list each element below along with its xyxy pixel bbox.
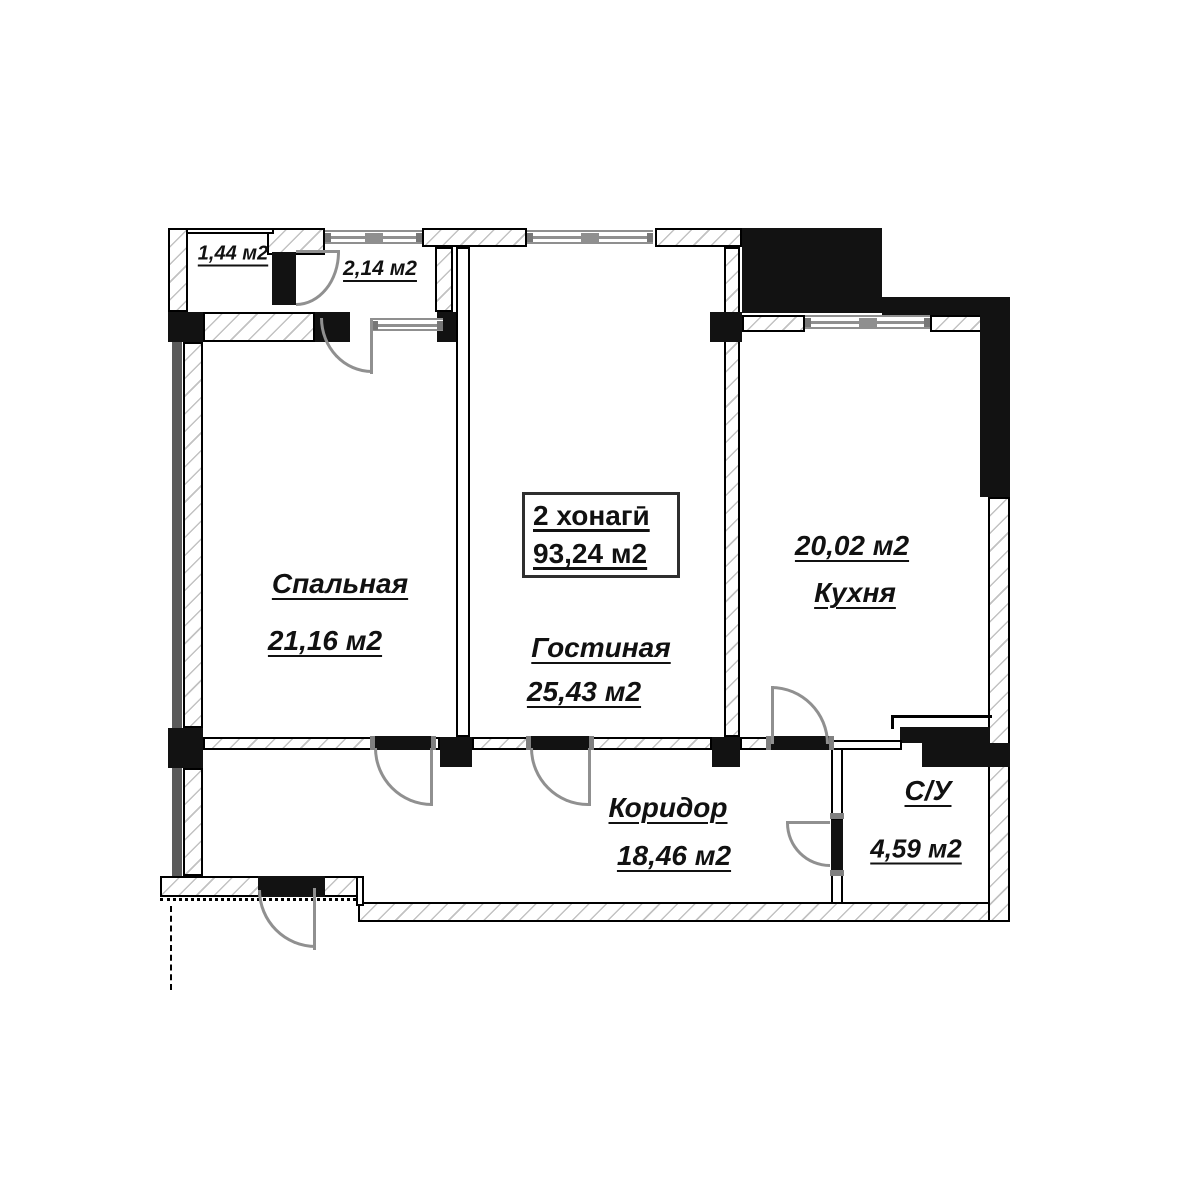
- kitchen-name-label: Кухня: [814, 577, 896, 609]
- outer-strip: [172, 342, 182, 876]
- wall-pier: [440, 737, 472, 767]
- bathroom-step-line-h: [893, 715, 992, 718]
- wall-hatch-left-lower: [183, 768, 203, 876]
- room-bedroom: [203, 342, 456, 737]
- wall-hatch-right: [988, 497, 1010, 922]
- wall-pier: [710, 312, 742, 342]
- wall-pier: [168, 728, 203, 768]
- door-jamb-cap: [829, 736, 834, 750]
- wall-thin-bathroom-left-upper: [831, 748, 843, 820]
- bathroom-area-label: 4,59 м2: [870, 834, 962, 865]
- window-glass-line: [374, 324, 441, 327]
- balcony-area-label: 2,14 м2: [343, 257, 417, 281]
- wall-hatch-corridor-top-4: [590, 737, 712, 750]
- window-cap: [647, 233, 653, 242]
- section-dash-line: [170, 906, 172, 990]
- door-arc-entry: [258, 890, 316, 948]
- bathroom-step-line-v: [891, 715, 894, 729]
- door-jamb-cap: [830, 870, 844, 876]
- wall-hatch-bedroom-top: [203, 312, 315, 342]
- balcony-small-area-label: 1,44 м2: [198, 243, 268, 266]
- door-jamb-cap: [431, 736, 436, 750]
- window-cap: [325, 233, 331, 242]
- door-leaf-entry: [313, 888, 316, 950]
- wall-hatch-top-center-right: [655, 228, 742, 247]
- living-name-label: Гостиная: [531, 632, 670, 664]
- floor-plan: 1,44 м2 2,14 м2 Спальная 21,16 м2 Гостин…: [0, 0, 1181, 1181]
- window-bedroom-balcony: [372, 318, 443, 331]
- window-living: [527, 230, 653, 244]
- wall-thin-kitchen-bottom-right: [830, 740, 902, 750]
- window-mullion: [365, 233, 383, 242]
- apartment-summary-box: 2 хонагӣ 93,24 м2: [522, 492, 680, 578]
- window-mullion: [581, 233, 599, 242]
- kitchen-area-label: 20,02 м2: [795, 530, 909, 562]
- apartment-total-area: 93,24 м2: [533, 535, 647, 573]
- door-jamb-cap: [766, 736, 771, 750]
- door-leaf-bedroom-balcony: [370, 318, 373, 374]
- bathroom-top-wall-b: [922, 743, 1010, 767]
- wall-hatch-left-upper: [183, 342, 203, 728]
- door-jamb-cap: [589, 736, 594, 750]
- wall-hatch-kitchen-window-right: [930, 315, 982, 332]
- wall-mass-kitchen-right: [980, 315, 1010, 497]
- bathroom-door-jamb: [831, 818, 843, 872]
- wall-hatch-top-center-left: [422, 228, 527, 247]
- wall-pier: [168, 312, 203, 342]
- wall-thin-entry-step: [356, 876, 364, 906]
- window-mullion: [859, 318, 877, 327]
- door-jamb-cap: [830, 813, 844, 819]
- door-leaf-living: [588, 748, 591, 806]
- window-cap: [416, 233, 422, 242]
- window-cap: [527, 233, 533, 242]
- window-cap: [437, 321, 443, 330]
- wall-hatch-bottom-main: [358, 902, 1010, 922]
- door-jamb-cap: [526, 736, 531, 750]
- door-leaf-bedroom: [430, 748, 433, 806]
- wall-pier: [712, 737, 740, 767]
- window-kitchen: [805, 315, 930, 329]
- wall-hatch-top-left-corner: [168, 228, 188, 312]
- bathroom-name-label: С/У: [905, 775, 952, 807]
- door-leaf-kitchen: [771, 686, 774, 744]
- wall-hatch-corridor-top-3: [472, 737, 530, 750]
- wall-mass-kitchen-top: [882, 297, 1010, 315]
- corridor-name-label: Коридор: [609, 792, 728, 824]
- bathroom-top-wall-a: [900, 727, 990, 743]
- living-area-label: 25,43 м2: [527, 676, 641, 708]
- wall-hatch-balcony-right: [435, 247, 453, 312]
- window-cap: [924, 318, 930, 327]
- bedroom-name-label: Спальная: [272, 568, 408, 600]
- wall-thin-bedroom-living-divider: [456, 247, 470, 737]
- window-balcony: [325, 230, 422, 244]
- balcony-door-jamb: [272, 252, 296, 305]
- door-leaf-balcony: [296, 250, 340, 253]
- door-leaf-bathroom: [786, 821, 830, 824]
- apartment-rooms-count: 2 хонагӣ: [533, 497, 650, 535]
- bedroom-area-label: 21,16 м2: [268, 625, 382, 657]
- wall-mass-top-right: [742, 228, 882, 313]
- wall-thin-balcony-small-top: [186, 228, 274, 234]
- corridor-area-label: 18,46 м2: [617, 840, 731, 872]
- door-jamb-cap: [370, 736, 375, 750]
- wall-hatch-corridor-top-1: [203, 737, 374, 750]
- wall-hatch-kitchen-window-left: [742, 315, 805, 332]
- window-cap: [805, 318, 811, 327]
